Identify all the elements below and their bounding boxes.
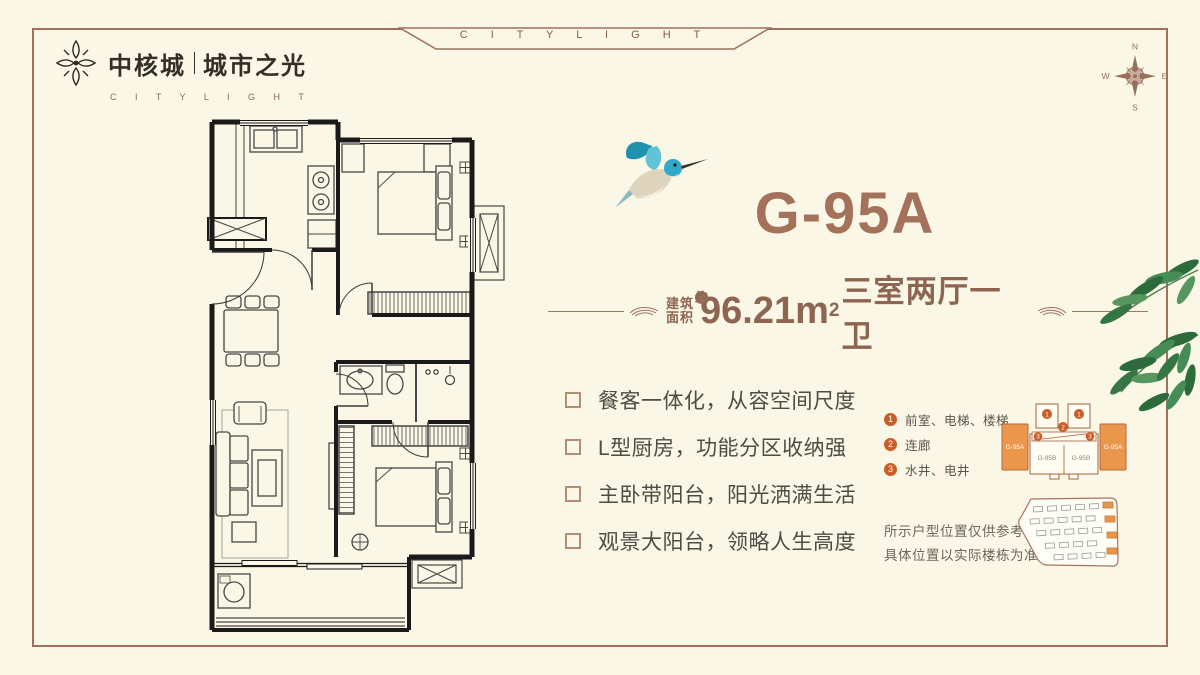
- diagram-center-left-label: G-95B: [1038, 455, 1057, 462]
- legend-item: 2 连廊: [884, 437, 1009, 452]
- legend-bullet: 2: [884, 438, 897, 451]
- area-row: 建筑 面积 约 96.21m 2 三室两厅一卫: [548, 284, 1148, 338]
- floor-plan: [172, 110, 506, 642]
- feature-text: 餐客一体化，从容空间尺度: [598, 385, 856, 415]
- area-label-line1: 建筑: [666, 297, 694, 311]
- diagram-marker-1a: 1: [1045, 411, 1049, 418]
- compass-west-label: W: [1101, 71, 1110, 81]
- compass-east-label: E: [1162, 71, 1168, 81]
- brand-subname: 城市之光: [203, 46, 307, 81]
- flourish-icon: [629, 304, 659, 318]
- checkbox-icon: [565, 392, 581, 408]
- legend-label: 连廊: [905, 435, 931, 454]
- area-exponent: 2: [829, 300, 840, 322]
- flourish-icon: [1037, 304, 1067, 318]
- legend-bullet: 1: [884, 413, 897, 426]
- feature-text: 主卧带阳台，阳光洒满生活: [598, 479, 856, 509]
- diagram-marker-3b: 3: [1088, 434, 1092, 441]
- bird-icon: [607, 138, 712, 218]
- compass-icon: N S E W: [1093, 38, 1177, 118]
- brand-latin: C I T Y L I G H T: [110, 92, 312, 102]
- diagram-marker-1b: 1: [1077, 411, 1081, 418]
- checkbox-icon: [565, 486, 581, 502]
- legend-item: 3 水井、电井: [884, 462, 1009, 477]
- area-label: 建筑 面积 约: [666, 297, 694, 325]
- brand-divider: [194, 52, 195, 74]
- furniture-layer: [208, 124, 504, 608]
- brand-logo: 中核城 城市之光 C I T Y L I G H T: [54, 38, 312, 102]
- legend-item: 1 前室、电梯、楼梯: [884, 412, 1009, 427]
- leaves-decoration-icon: [1086, 240, 1200, 426]
- legend-label: 水井、电井: [905, 460, 970, 479]
- compass-north-label: N: [1132, 41, 1138, 51]
- diagram-marker-3a: 3: [1036, 434, 1040, 441]
- feature-text: 观景大阳台，领略人生高度: [598, 526, 856, 556]
- area-layout: 三室两厅一卫: [841, 266, 1032, 356]
- legend-bullet: 3: [884, 463, 897, 476]
- diagram-center-right-label: G-95B: [1072, 455, 1091, 462]
- feature-item: L型厨房，功能分区收纳强: [565, 435, 856, 459]
- diagram-left-block-label: G-95A: [1006, 444, 1025, 451]
- unit-title: G-95A: [700, 180, 990, 247]
- divider-line-left: [548, 311, 624, 312]
- area-value: 96.21m: [700, 290, 829, 333]
- feature-item: 主卧带阳台，阳光洒满生活: [565, 482, 856, 506]
- feature-item: 观景大阳台，领略人生高度: [565, 529, 856, 553]
- checkbox-icon: [565, 439, 581, 455]
- feature-item: 餐客一体化，从容空间尺度: [565, 388, 856, 412]
- approx-badge: 约: [695, 291, 708, 304]
- compass-south-label: S: [1132, 102, 1138, 112]
- diagram-right-block-label: G-95A: [1104, 444, 1123, 451]
- area-label-line2: 面积: [666, 311, 694, 325]
- poster: C I T Y L I G H T 中核城 城市之光: [0, 0, 1200, 675]
- flower-logo-icon: [54, 38, 98, 88]
- diagram-marker-2: 2: [1061, 424, 1065, 431]
- legend: 1 前室、电梯、楼梯 2 连廊 3 水井、电井: [884, 412, 1009, 487]
- top-banner: C I T Y L I G H T: [398, 27, 772, 52]
- legend-label: 前室、电梯、楼梯: [905, 410, 1009, 429]
- brand-name: 中核城: [108, 46, 186, 81]
- site-plan: [1015, 496, 1127, 576]
- feature-list: 餐客一体化，从容空间尺度 L型厨房，功能分区收纳强 主卧带阳台，阳光洒满生活 观…: [565, 388, 856, 576]
- checkbox-icon: [565, 533, 581, 549]
- feature-text: L型厨房，功能分区收纳强: [598, 432, 847, 462]
- banner-text: C I T Y L I G H T: [398, 29, 772, 41]
